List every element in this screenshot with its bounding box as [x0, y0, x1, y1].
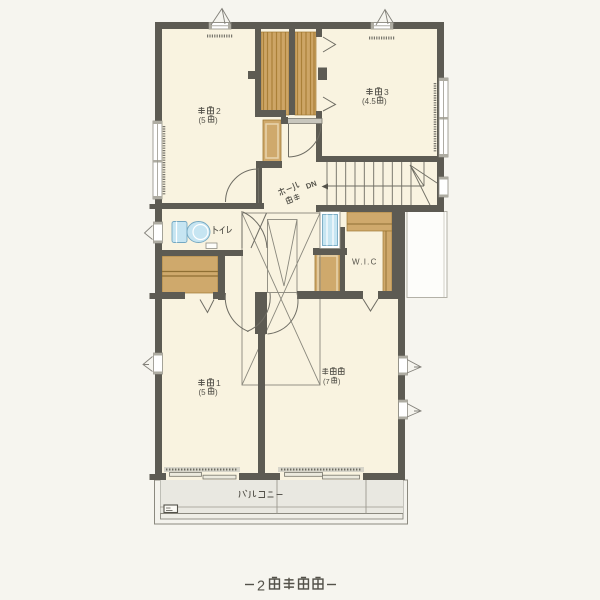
svg-text:(4.5: (4.5: [362, 97, 376, 106]
svg-text:2: 2: [216, 106, 221, 116]
svg-text:1: 1: [216, 378, 221, 388]
svg-text:(5: (5: [199, 388, 207, 397]
svg-text:W.I.C: W.I.C: [352, 258, 378, 267]
svg-text:(5: (5: [199, 116, 207, 125]
svg-text:2: 2: [257, 579, 265, 595]
svg-text:): ): [384, 97, 387, 106]
svg-text:3: 3: [384, 87, 389, 97]
svg-text:): ): [215, 116, 218, 125]
svg-text:(7: (7: [323, 377, 330, 386]
svg-text:): ): [215, 388, 218, 397]
